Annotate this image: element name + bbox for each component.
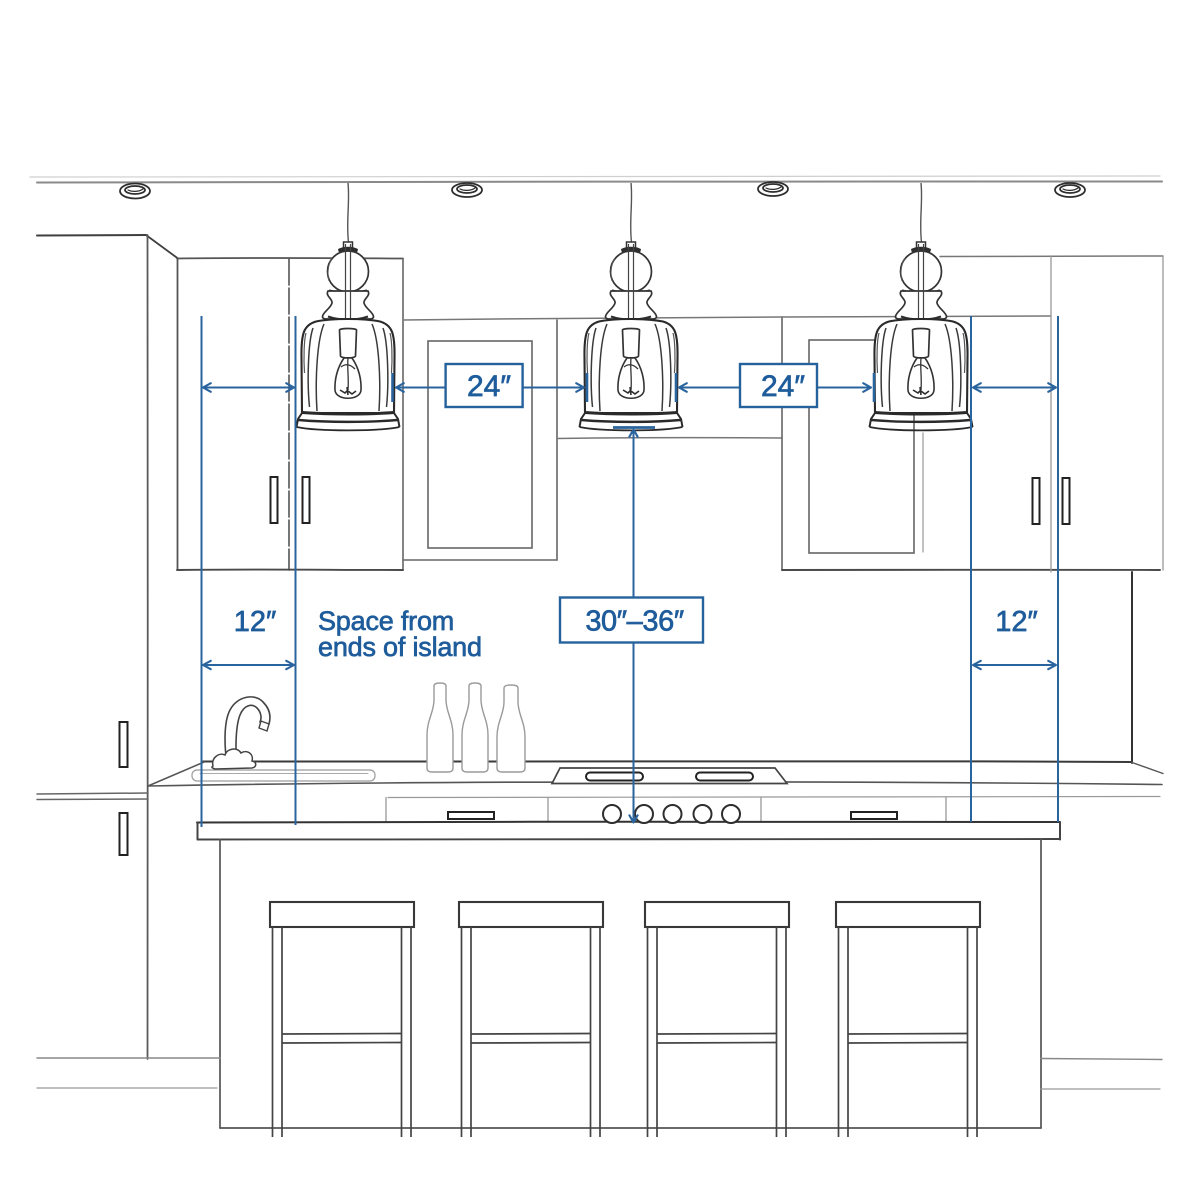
svg-text:24″: 24″ <box>467 370 511 403</box>
svg-text:30″–36″: 30″–36″ <box>585 606 684 638</box>
svg-text:ends of island: ends of island <box>318 632 482 662</box>
svg-text:12″: 12″ <box>234 606 277 638</box>
svg-text:24″: 24″ <box>761 370 805 403</box>
svg-text:12″: 12″ <box>995 606 1038 638</box>
